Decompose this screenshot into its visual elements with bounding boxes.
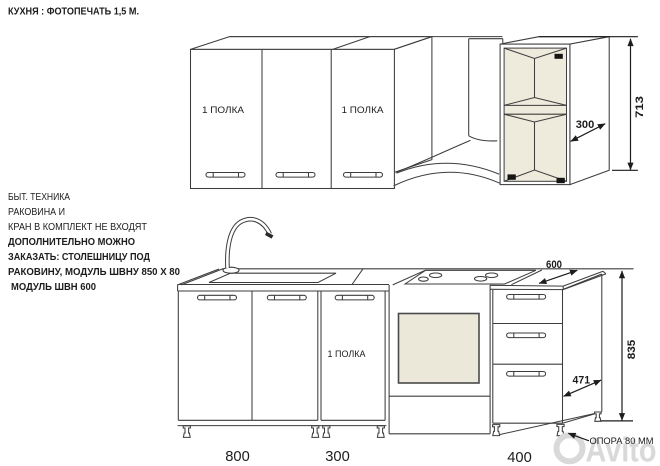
svg-text:300: 300 bbox=[325, 448, 350, 465]
svg-text:1 ПОЛКА: 1 ПОЛКА bbox=[342, 105, 384, 115]
svg-text:КРАН В КОМПЛЕКТ НЕ ВХОДЯТ: КРАН В КОМПЛЕКТ НЕ ВХОДЯТ bbox=[8, 222, 147, 233]
svg-text:1 ПОЛКА: 1 ПОЛКА bbox=[202, 105, 244, 115]
svg-text:ОПОРА 80 ММ: ОПОРА 80 ММ bbox=[590, 436, 654, 446]
svg-text:713: 713 bbox=[634, 96, 646, 118]
svg-text:ЗАКАЗАТЬ: СТОЛЕШНИЦУ ПОД: ЗАКАЗАТЬ: СТОЛЕШНИЦУ ПОД bbox=[8, 252, 150, 263]
svg-text:471: 471 bbox=[573, 375, 591, 387]
svg-text:835: 835 bbox=[626, 340, 638, 360]
svg-text:ДОПОЛНИТЕЛЬНО МОЖНО: ДОПОЛНИТЕЛЬНО МОЖНО bbox=[8, 237, 135, 248]
svg-text:МОДУЛЬ ШВН 600: МОДУЛЬ ШВН 600 bbox=[11, 282, 96, 293]
svg-text:КУХНЯ : ФОТОПЕЧАТЬ 1,5 М.: КУХНЯ : ФОТОПЕЧАТЬ 1,5 М. bbox=[8, 6, 139, 18]
svg-text:600: 600 bbox=[546, 259, 562, 271]
svg-text:РАКОВИНА И: РАКОВИНА И bbox=[8, 207, 65, 218]
svg-text:1 ПОЛКА: 1 ПОЛКА bbox=[328, 349, 366, 359]
svg-text:800: 800 bbox=[225, 448, 250, 465]
svg-text:400: 400 bbox=[507, 449, 532, 466]
svg-text:БЫТ. ТЕХНИКА: БЫТ. ТЕХНИКА bbox=[8, 192, 70, 203]
svg-text:300: 300 bbox=[576, 119, 595, 131]
svg-text:РАКОВИНУ, МОДУЛЬ ШВНУ 850 Х 80: РАКОВИНУ, МОДУЛЬ ШВНУ 850 Х 80 bbox=[8, 267, 180, 278]
